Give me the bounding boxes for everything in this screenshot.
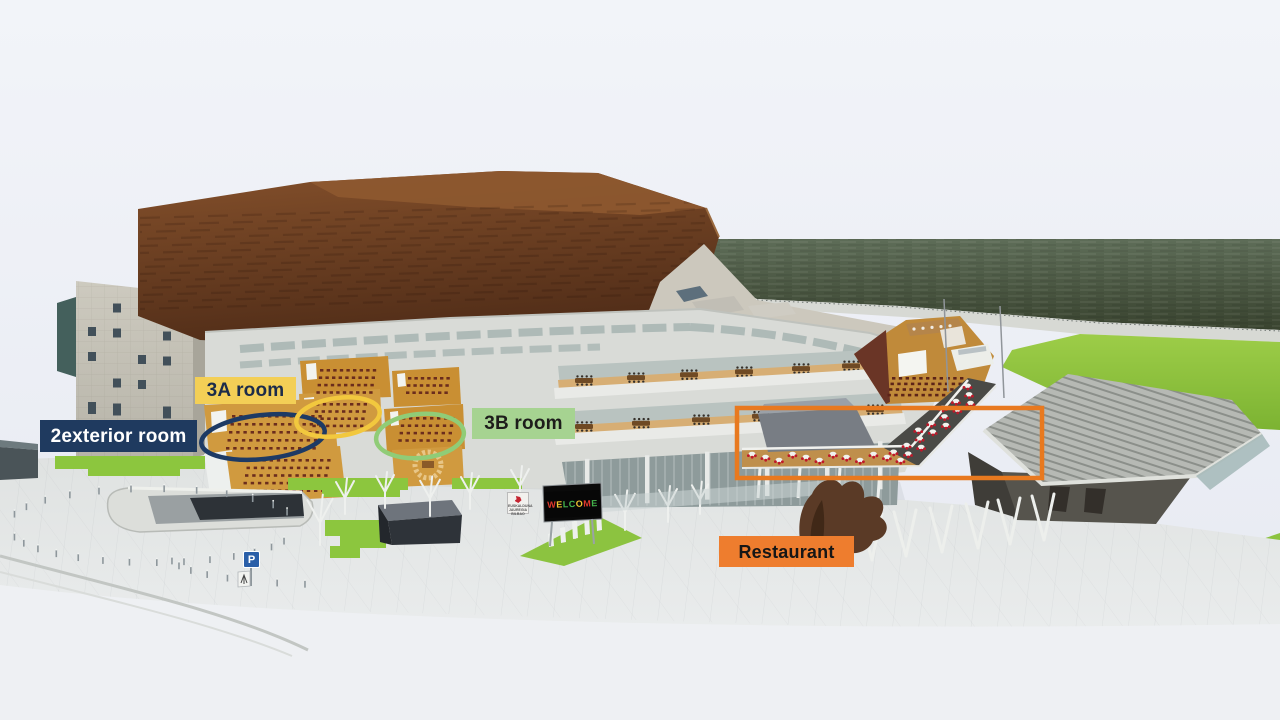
welcome-letter: W (547, 500, 556, 510)
kiosk-centre (378, 500, 462, 545)
annotated-venue-rendering: 3A room 2exterior room 3B room Restauran… (0, 0, 1280, 720)
venue-sign: EUSKALDUNA JAUREGIA BILBAO (507, 492, 529, 514)
parking-sign: P (243, 551, 260, 568)
label-room-3a: 3A room (195, 377, 296, 404)
label-restaurant: Restaurant (719, 536, 854, 567)
label-room-2exterior: 2exterior room (40, 420, 197, 452)
label-room-3b: 3B room (472, 408, 575, 439)
welcome-led-screen: WELCOME (545, 490, 601, 518)
kiosk-left (0, 440, 38, 480)
scene-canvas (0, 0, 1280, 720)
welcome-letter: E (591, 498, 598, 508)
glass-wall-fragment (57, 297, 76, 377)
venue-logo-icon (515, 496, 522, 503)
